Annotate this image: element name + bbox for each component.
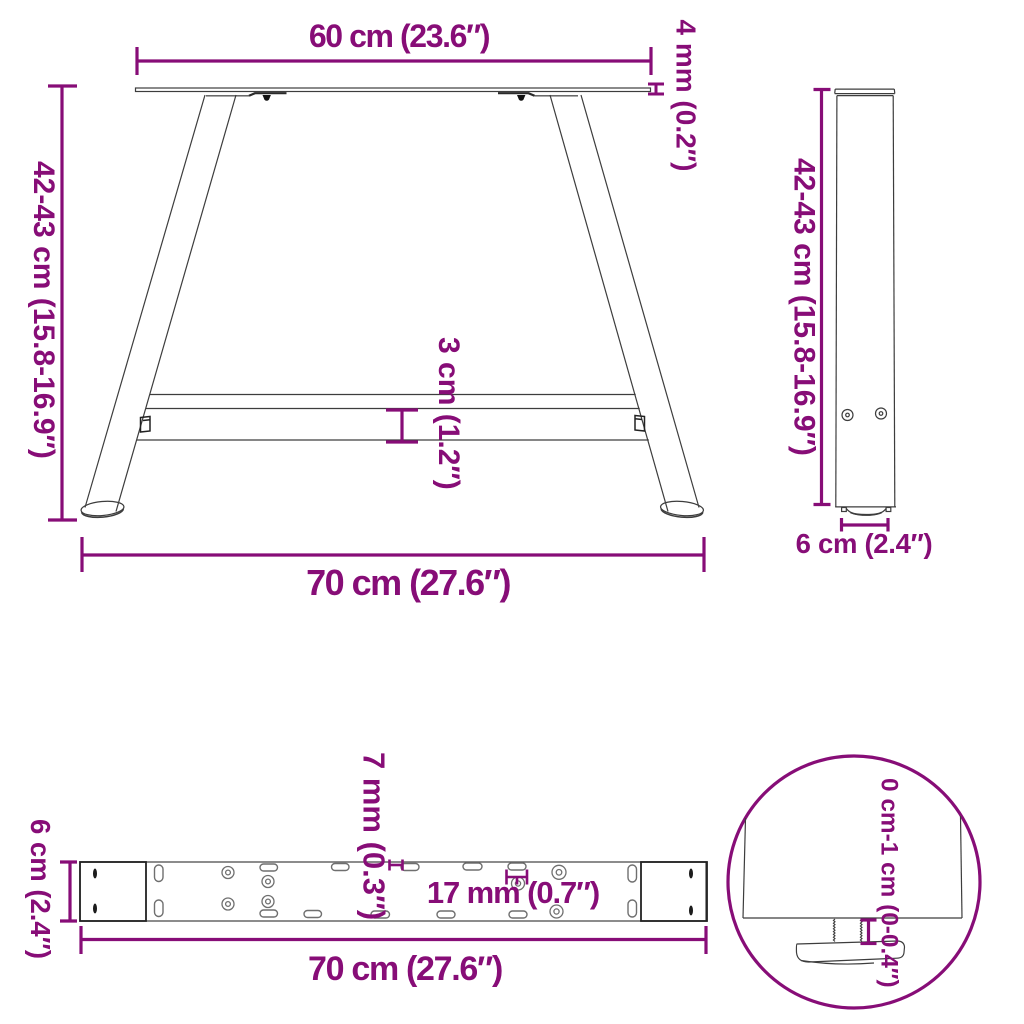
svg-text:42-43 cm (15.8-16.9″): 42-43 cm (15.8-16.9″) (788, 158, 821, 456)
svg-text:17 mm (0.7″): 17 mm (0.7″) (427, 875, 599, 910)
svg-text:0 cm-1 cm (0-0.4″): 0 cm-1 cm (0-0.4″) (876, 778, 903, 988)
svg-text:70 cm (27.6″): 70 cm (27.6″) (306, 562, 510, 603)
svg-text:70 cm (27.6″): 70 cm (27.6″) (308, 950, 502, 988)
svg-text:42-43 cm (15.8-16.9″): 42-43 cm (15.8-16.9″) (27, 161, 60, 459)
svg-text:6 cm (2.4″): 6 cm (2.4″) (796, 528, 933, 559)
svg-text:3 cm (1.2″): 3 cm (1.2″) (432, 337, 465, 490)
svg-text:6 cm (2.4″): 6 cm (2.4″) (25, 819, 56, 959)
svg-text:7 mm (0.3″): 7 mm (0.3″) (357, 752, 392, 920)
svg-text:4 mm (0.2″): 4 mm (0.2″) (671, 20, 702, 172)
svg-text:60 cm (23.6″): 60 cm (23.6″) (309, 18, 490, 54)
